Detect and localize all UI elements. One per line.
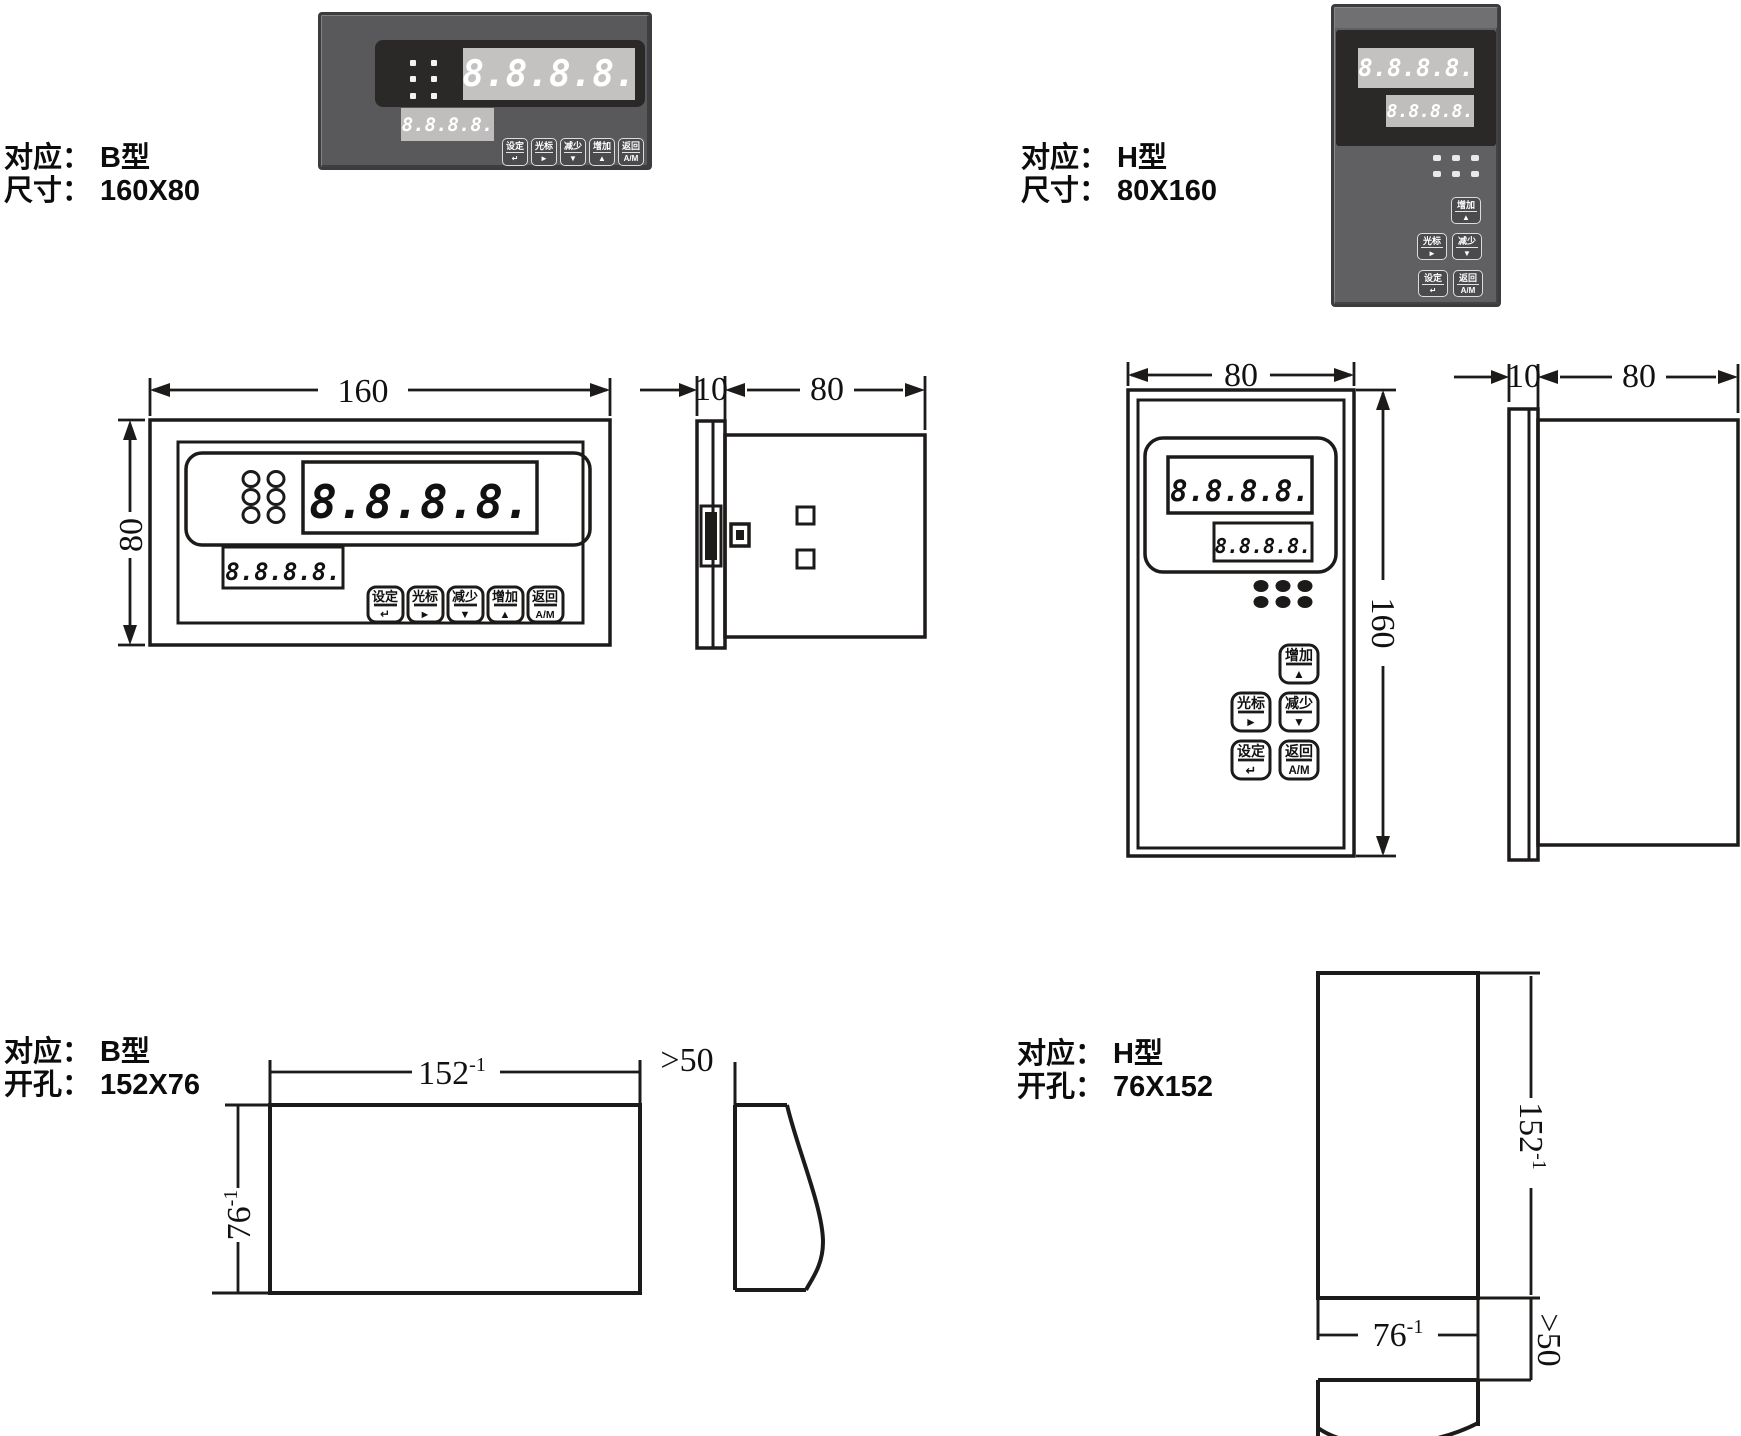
decrease-button-label: 减少 bbox=[564, 141, 582, 151]
mounting-clip-fill bbox=[736, 530, 744, 540]
h-cutout-rect bbox=[1318, 973, 1478, 1298]
dim-text: 10 bbox=[1507, 358, 1541, 395]
b-front-buttons: 设定 ↵ 光标 ► 减少 ▼ 增加 ▲ 返回 A/M bbox=[368, 587, 563, 622]
dim-b-side-body: 80 bbox=[725, 371, 925, 430]
enter-icon: ↵ bbox=[380, 607, 390, 621]
increase-button: 增加 ▲ bbox=[1451, 197, 1481, 224]
cursor-button-label: 光标 bbox=[1236, 695, 1265, 711]
label-value: 76X152 bbox=[1113, 1071, 1213, 1104]
status-led bbox=[410, 60, 416, 66]
h-size-label: 对应：H型 尺寸：80X160 bbox=[1021, 142, 1217, 208]
panel-meter-dimension-sheet: 8.8.8.8. 8.8.8.8. 设定 ↵ 光标 ► 减少 ▼ 增加 ▲ 返回… bbox=[0, 0, 1741, 1436]
b-size-label: 对应：B型 尺寸：160X80 bbox=[4, 142, 200, 208]
set-button-label: 设定 bbox=[1237, 743, 1265, 759]
sub-display-digits: 8.8.8.8. bbox=[1215, 534, 1311, 558]
b-meter-buttons: 设定 ↵ 光标 ► 减少 ▼ 增加 ▲ 返回 A/M bbox=[502, 138, 644, 166]
dim-text: 160 bbox=[1364, 598, 1401, 649]
status-led bbox=[431, 76, 437, 82]
dim-b-front-height: 80 bbox=[113, 420, 150, 645]
label-prefix: 对应： bbox=[1017, 1038, 1104, 1071]
dim-b-cut-height: 76-1 bbox=[220, 1105, 258, 1293]
status-led bbox=[431, 93, 437, 99]
status-led bbox=[410, 76, 416, 82]
b-meter-display-window: 8.8.8.8. bbox=[375, 40, 645, 107]
enter-icon: ↵ bbox=[506, 152, 525, 163]
b-meter-sub-display: 8.8.8.8. bbox=[401, 108, 494, 141]
status-led bbox=[431, 60, 437, 66]
up-arrow-icon: ▲ bbox=[500, 609, 511, 621]
return-button-label: 返回 bbox=[1285, 743, 1313, 759]
up-arrow-icon: ▲ bbox=[593, 152, 612, 163]
b-side-drawing: 10 80 bbox=[630, 360, 950, 660]
b-side-body bbox=[725, 435, 925, 637]
label-value: 160X80 bbox=[100, 175, 200, 208]
label-value: B型 bbox=[100, 1036, 150, 1069]
h-meter-main-display: 8.8.8.8. bbox=[1358, 48, 1474, 88]
indicator-leds bbox=[243, 472, 284, 523]
dim-gap-text: >50 bbox=[660, 1042, 713, 1079]
label-prefix: 尺寸： bbox=[4, 175, 91, 208]
h-meter-top-strip bbox=[1335, 8, 1497, 28]
h-meter-display-window: 8.8.8.8. 8.8.8.8. bbox=[1336, 30, 1496, 146]
dim-b-cut-width: 152-1 bbox=[270, 1054, 640, 1092]
auto-manual-label: A/M bbox=[1457, 284, 1479, 295]
label-value: B型 bbox=[100, 142, 150, 175]
dim-text: 10 bbox=[694, 371, 728, 408]
dim-text: 76-1 bbox=[220, 1190, 258, 1241]
label-prefix: 尺寸： bbox=[1021, 175, 1108, 208]
decrease-button-label: 减少 bbox=[1458, 236, 1476, 246]
b-meter-photo: 8.8.8.8. 8.8.8.8. 设定 ↵ 光标 ► 减少 ▼ 增加 ▲ 返回… bbox=[318, 12, 652, 170]
down-arrow-icon: ▼ bbox=[1293, 715, 1305, 729]
enter-icon: ↵ bbox=[1246, 763, 1257, 778]
auto-manual-label: A/M bbox=[622, 152, 641, 163]
decrease-button: 减少 ▼ bbox=[560, 138, 586, 166]
dim-h-side-bezel: 10 bbox=[1454, 358, 1541, 413]
dim-h-front-height: 160 bbox=[1356, 390, 1401, 856]
set-button-label: 设定 bbox=[372, 589, 398, 604]
label-prefix: 开孔： bbox=[4, 1069, 91, 1102]
return-button-label: 返回 bbox=[532, 589, 558, 604]
increase-button-label: 增加 bbox=[492, 589, 518, 604]
h-cutout-label: 对应：H型 开孔：76X152 bbox=[1017, 1038, 1213, 1104]
return-button: 返回 A/M bbox=[1453, 270, 1483, 297]
cursor-button-label: 光标 bbox=[411, 589, 438, 604]
cursor-button: 光标 ► bbox=[1417, 233, 1447, 260]
set-button: 设定 ↵ bbox=[502, 138, 528, 166]
h-side-bezel bbox=[1509, 409, 1538, 860]
indicator-leds bbox=[1254, 580, 1313, 608]
status-led bbox=[410, 93, 416, 99]
h-side-body bbox=[1538, 420, 1738, 845]
cursor-button-label: 光标 bbox=[535, 141, 553, 151]
main-display-digits: 8.8.8.8. bbox=[309, 475, 531, 529]
b-meter-main-display: 8.8.8.8. bbox=[463, 48, 635, 100]
right-arrow-icon: ► bbox=[420, 609, 431, 621]
auto-manual-label: A/M bbox=[1288, 765, 1309, 777]
h-meter-sub-display: 8.8.8.8. bbox=[1386, 95, 1474, 127]
increase-button: 增加 ▲ bbox=[589, 138, 615, 166]
label-prefix: 对应： bbox=[4, 142, 91, 175]
down-arrow-icon: ▼ bbox=[1456, 247, 1478, 258]
set-button-label: 设定 bbox=[506, 141, 524, 151]
b-cutout-rect bbox=[270, 1105, 640, 1293]
h-meter-photo: 8.8.8.8. 8.8.8.8. 增加 ▲ 光标 ► 减少 ▼ 设定 ↵ 返回… bbox=[1331, 4, 1501, 307]
status-led bbox=[1433, 171, 1441, 177]
label-prefix: 对应： bbox=[4, 1036, 91, 1069]
dim-text: 152-1 bbox=[418, 1054, 486, 1092]
cursor-button-label: 光标 bbox=[1423, 236, 1441, 246]
increase-button-label: 增加 bbox=[1285, 647, 1313, 663]
sub-display-digits: 8.8.8.8. bbox=[225, 558, 341, 586]
h-front-drawing: 80 160 8.8.8.8. 8.8.8.8. 增加 ▲ 光标 ► bbox=[1000, 350, 1420, 870]
b-cutout-label: 对应：B型 开孔：152X76 bbox=[4, 1036, 200, 1102]
set-button-label: 设定 bbox=[1424, 273, 1442, 283]
main-display-digits: 8.8.8.8. bbox=[1170, 474, 1310, 508]
auto-manual-label: A/M bbox=[535, 609, 555, 621]
right-arrow-icon: ► bbox=[1245, 715, 1257, 729]
terminal-hole bbox=[797, 507, 814, 524]
adjacent-panel-break bbox=[735, 1105, 823, 1290]
label-value: H型 bbox=[1117, 142, 1167, 175]
dim-text: 80 bbox=[810, 371, 844, 408]
terminal-hole bbox=[797, 550, 814, 568]
dim-text: 160 bbox=[338, 373, 389, 410]
label-prefix: 对应： bbox=[1021, 142, 1108, 175]
status-led bbox=[1433, 155, 1441, 161]
decrease-button-label: 减少 bbox=[452, 589, 478, 604]
label-value: 152X76 bbox=[100, 1069, 200, 1102]
adjacent-panel-break bbox=[1318, 1380, 1478, 1436]
decrease-button: 减少 ▼ bbox=[1452, 233, 1482, 260]
right-arrow-icon: ► bbox=[1421, 247, 1443, 258]
up-arrow-icon: ▲ bbox=[1293, 667, 1305, 681]
label-value: 80X160 bbox=[1117, 175, 1217, 208]
dim-text: 152-1 bbox=[1512, 1102, 1550, 1170]
label-value: H型 bbox=[1113, 1038, 1163, 1071]
dim-b-front-width: 160 bbox=[150, 373, 610, 416]
increase-button-label: 增加 bbox=[1457, 200, 1475, 210]
return-button: 返回 A/M bbox=[618, 138, 644, 166]
status-led bbox=[1452, 171, 1460, 177]
decrease-button-label: 减少 bbox=[1285, 695, 1313, 711]
dim-h-cut-width: 76-1 bbox=[1318, 1316, 1478, 1354]
h-front-buttons: 增加 ▲ 光标 ► 减少 ▼ 设定 ↵ 返回 A/M bbox=[1232, 645, 1318, 779]
mounting-latch-fill bbox=[705, 512, 717, 560]
h-cutout-drawing: 152-1 76-1 >50 bbox=[1270, 940, 1600, 1436]
down-arrow-icon: ▼ bbox=[460, 609, 471, 621]
dim-text: 80 bbox=[113, 518, 150, 552]
set-button: 设定 ↵ bbox=[1418, 270, 1448, 297]
status-led bbox=[1471, 155, 1479, 161]
h-side-drawing: 10 80 bbox=[1440, 350, 1741, 870]
dim-text: 76-1 bbox=[1373, 1316, 1424, 1354]
up-arrow-icon: ▲ bbox=[1455, 211, 1477, 222]
increase-button-label: 增加 bbox=[593, 141, 611, 151]
right-arrow-icon: ► bbox=[535, 152, 554, 163]
dim-h-side-body: 80 bbox=[1538, 358, 1738, 413]
h-front-outer-rect bbox=[1128, 390, 1354, 856]
b-front-drawing: 160 80 8.8.8.8. 8.8.8.8. 设定 ↵ 光标 bbox=[100, 360, 660, 660]
down-arrow-icon: ▼ bbox=[564, 152, 583, 163]
status-led bbox=[1452, 155, 1460, 161]
dim-text: 80 bbox=[1622, 358, 1656, 395]
dim-gap-text: >50 bbox=[1530, 1313, 1567, 1366]
enter-icon: ↵ bbox=[1422, 284, 1444, 295]
status-led bbox=[1471, 171, 1479, 177]
b-cutout-drawing: 152-1 76-1 >50 bbox=[190, 1030, 840, 1320]
return-button-label: 返回 bbox=[1459, 273, 1477, 283]
cursor-button: 光标 ► bbox=[531, 138, 557, 166]
label-prefix: 开孔： bbox=[1017, 1071, 1104, 1104]
dim-h-cut-height: 152-1 bbox=[1512, 976, 1550, 1295]
return-button-label: 返回 bbox=[622, 141, 640, 151]
